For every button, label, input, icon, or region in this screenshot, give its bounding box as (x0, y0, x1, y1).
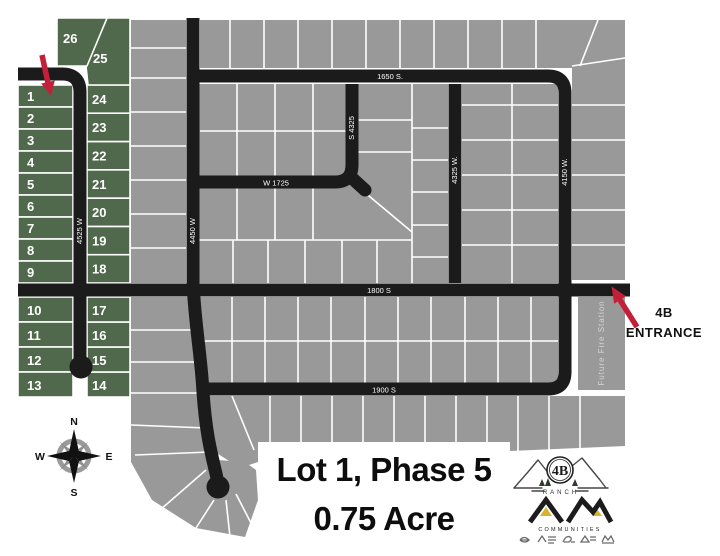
green-lot-number: 24 (92, 92, 107, 107)
green-lot-number: 7 (27, 221, 34, 236)
compass-rose: N S W E (35, 416, 112, 499)
entrance-label-line1: 4B (655, 305, 673, 320)
ranch-logo-badge-text: 4B (552, 464, 568, 479)
street-label-4325w: 4325 W. (450, 156, 459, 184)
partner-logos (520, 536, 614, 543)
communities-logo: COMMUNITIES (520, 500, 614, 543)
gray-column-west (131, 20, 186, 283)
communities-logo-letter-m (568, 500, 611, 522)
ranch-logo: 4B RANCH (514, 457, 608, 496)
street-label-4450w: 4450 W (188, 217, 197, 244)
green-lot-number: 15 (92, 353, 106, 368)
green-lot-6: 6 (18, 195, 73, 217)
green-lot-16: 16 (87, 322, 130, 347)
partner-logo (563, 537, 575, 542)
green-lot-12: 12 (18, 347, 73, 372)
entrance-label-line2: ENTRANCE (626, 325, 702, 340)
green-lot-number: 12 (27, 353, 41, 368)
green-lot-number: 22 (92, 149, 106, 164)
gray-block-between-4325w-4150w (462, 84, 558, 283)
street-label-1900s: 1900 S (372, 386, 396, 395)
culdesac-4450w (207, 476, 230, 499)
green-lot-9: 9 (18, 261, 73, 283)
road-w1725-stub (353, 179, 365, 190)
green-lot-2: 2 (18, 107, 73, 129)
green-lot-number: 13 (27, 378, 41, 393)
green-lot-22: 22 (87, 142, 130, 170)
green-lot-23: 23 (87, 113, 130, 141)
green-lot-number: 10 (27, 303, 41, 318)
green-lot-number: 2 (27, 111, 34, 126)
green-lot-14: 14 (87, 372, 130, 397)
green-lot-15: 15 (87, 347, 130, 372)
partner-logo (520, 538, 529, 543)
ranch-logo-name: RANCH (543, 490, 579, 496)
compass-hub (72, 454, 76, 458)
green-lot-8: 8 (18, 239, 73, 261)
green-lot-number: 16 (92, 328, 106, 343)
compass-label-n: N (70, 416, 78, 428)
green-lot-number: 8 (27, 243, 34, 258)
green-lot-number: 23 (92, 120, 106, 135)
culdesac-4525w (70, 356, 93, 379)
green-lot-number: 3 (27, 133, 34, 148)
green-lot-17: 17 (87, 297, 130, 322)
compass-label-e: E (105, 451, 112, 463)
partner-logo (602, 536, 614, 543)
green-lot-10: 10 (18, 297, 73, 322)
green-lot-number: 17 (92, 303, 106, 318)
green-lot-4: 4 (18, 151, 73, 173)
street-label-4150w: 4150 W. (560, 158, 569, 186)
street-label-1800s: 1800 S (367, 286, 391, 295)
green-lot-number: 5 (27, 177, 34, 192)
title-box: Lot 1, Phase 5 0.75 Acre (258, 442, 510, 556)
lot-title-line2: 0.75 Acre (313, 500, 454, 537)
green-lot-7: 7 (18, 217, 73, 239)
green-lot-number: 6 (27, 199, 34, 214)
green-lot-number: 14 (92, 378, 107, 393)
green-lot-number: 20 (92, 205, 106, 220)
green-lot-number: 9 (27, 265, 34, 280)
green-lot-number: 18 (92, 262, 106, 277)
green-lot-20: 20 (87, 198, 130, 226)
green-lot-19: 19 (87, 226, 130, 254)
green-lot-3: 3 (18, 129, 73, 151)
partner-logo (581, 536, 596, 542)
street-label-s4325: S 4325 (347, 116, 356, 140)
plat-map-flyer: 1234567891011121314151617181920212223242… (0, 0, 720, 556)
green-lot-24: 24 (87, 85, 130, 113)
partner-logo (538, 536, 556, 543)
green-lot-number: 19 (92, 233, 106, 248)
future-fire-station-label: Future Fire Station (597, 300, 606, 385)
compass-label-s: S (70, 487, 77, 499)
green-lot-18: 18 (87, 255, 130, 283)
gray-band-1800s-1900s (200, 297, 558, 383)
green-lot-number: 26 (63, 31, 77, 46)
gray-column-east (572, 68, 625, 280)
green-lot-number: 25 (93, 51, 107, 66)
lot-title-line1: Lot 1, Phase 5 (277, 451, 492, 488)
green-lot-number: 21 (92, 177, 106, 192)
plat-map-canvas: 1234567891011121314151617181920212223242… (0, 0, 720, 556)
street-label-w1725: W 1725 (263, 179, 289, 188)
street-label-1650s: 1650 S. (377, 72, 403, 81)
green-lot-number: 11 (27, 328, 41, 343)
green-lot-number: 1 (27, 89, 34, 104)
compass-label-w: W (35, 451, 45, 463)
green-lot-21: 21 (87, 170, 130, 198)
communities-logo-name: COMMUNITIES (538, 527, 601, 533)
green-lot-5: 5 (18, 173, 73, 195)
green-lot-13: 13 (18, 372, 73, 397)
green-lot-11: 11 (18, 322, 73, 347)
street-label-4525w: 4525 W (75, 217, 84, 244)
green-lot-number: 4 (27, 155, 35, 170)
